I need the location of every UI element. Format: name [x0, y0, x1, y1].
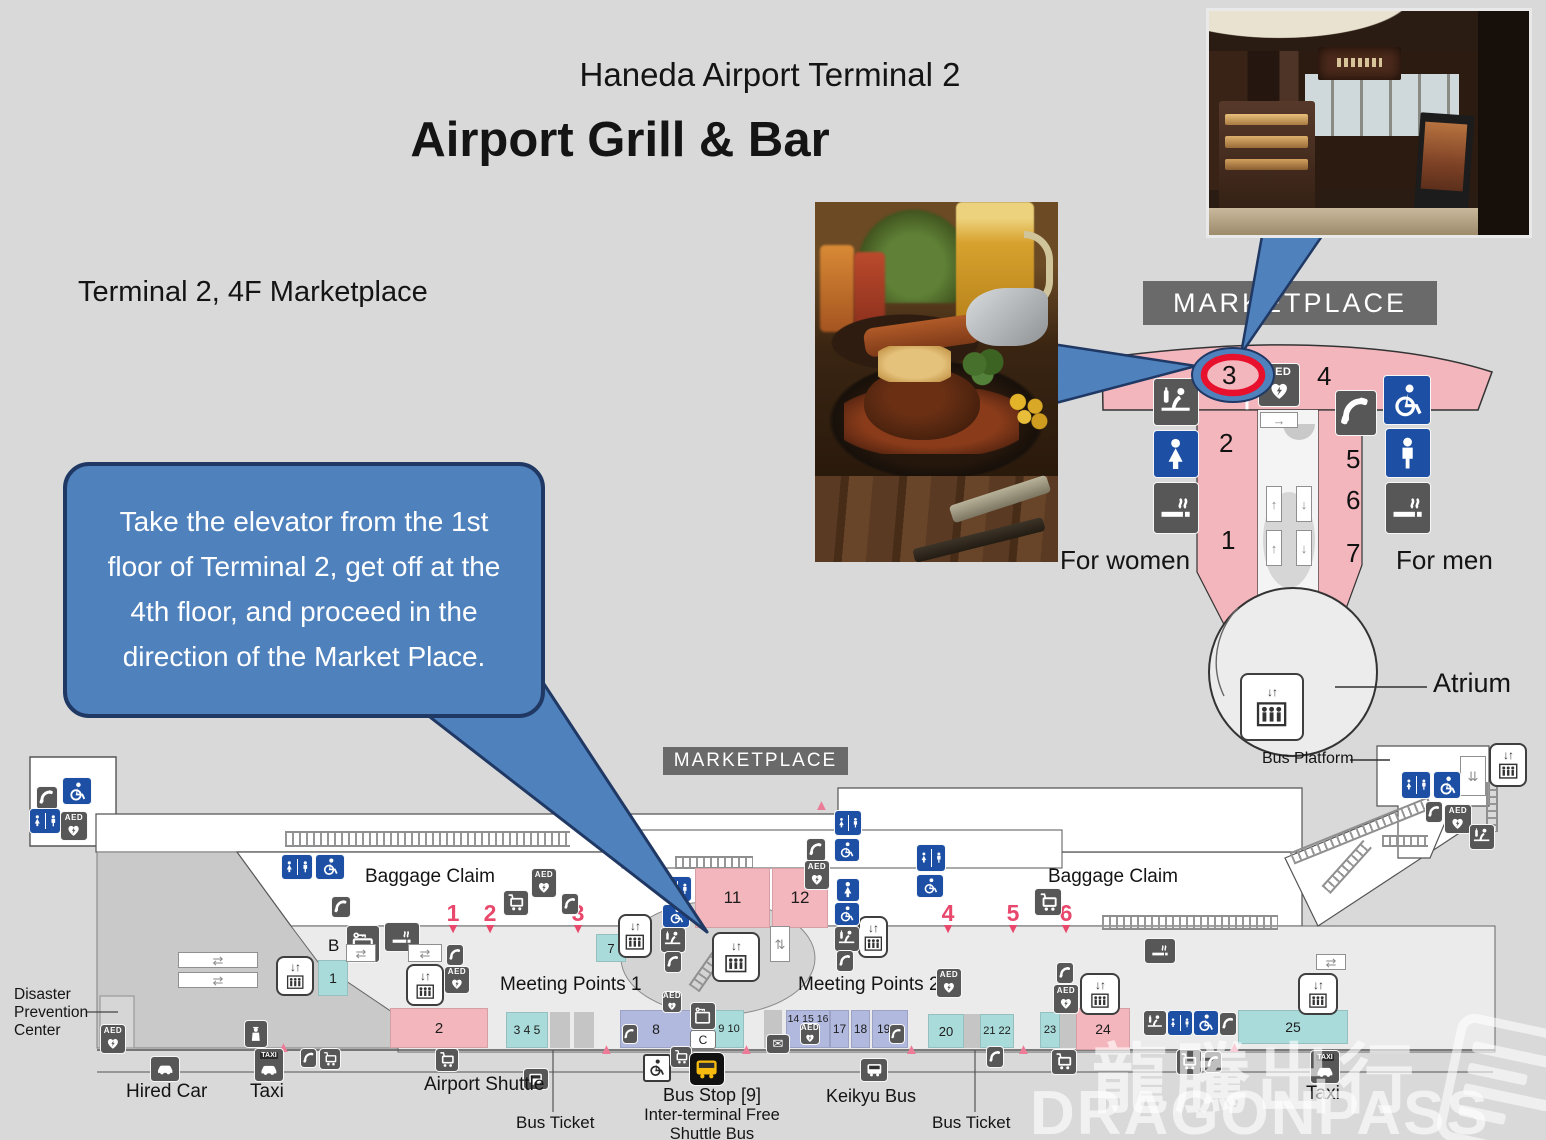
- photo-dark-column: [1478, 11, 1529, 235]
- zone-box-18: 18: [851, 1010, 870, 1048]
- photo-gravy-boat: [966, 288, 1049, 346]
- walkway-arrow-icon: →: [1260, 412, 1298, 428]
- zone-box-17: 17: [830, 1010, 849, 1048]
- photo-shelf: [1225, 159, 1308, 170]
- zone-4f-4: 4: [1317, 361, 1331, 392]
- taxi-icon: TAXI: [1310, 1050, 1340, 1084]
- zone-4f-1: 1: [1221, 525, 1235, 556]
- moving-walkway-hatch: [285, 831, 570, 847]
- aed-icon: AED: [1444, 804, 1472, 834]
- phone-icon: [331, 896, 351, 918]
- accessible-icon: [1433, 771, 1461, 799]
- restroom-icon: [29, 808, 61, 834]
- zone-box: [550, 1012, 570, 1048]
- bus-ticket-left-label: Bus Ticket: [516, 1113, 594, 1133]
- accessible-icon: [643, 1054, 671, 1082]
- elevator-icon: ↓↑: [858, 916, 888, 958]
- restaurant-photo: [1206, 8, 1532, 238]
- aed-icon: AED: [800, 1023, 820, 1045]
- bus-platform-label: Bus Platform: [1262, 750, 1354, 768]
- zone-box-23: 23: [1040, 1012, 1060, 1048]
- zone-box: [574, 1012, 594, 1048]
- location-label: Terminal 2, 4F Marketplace: [78, 276, 428, 309]
- curb-marker: [1016, 1042, 1031, 1057]
- phone-icon: [664, 951, 682, 973]
- zone-box-1: 1: [318, 960, 348, 996]
- baby-changing-icon: [660, 927, 686, 953]
- gate-2-marker: 2: [477, 903, 503, 934]
- marketplace-banner-4f: MARKETPLACE: [1143, 281, 1437, 325]
- hired-car-icon: [150, 1056, 180, 1082]
- zone-box-2: 2: [390, 1008, 488, 1048]
- aed-icon: AED: [60, 811, 88, 841]
- airport-shuttle-label: Airport Shuttle: [424, 1074, 544, 1096]
- bus-stop-label: Bus Stop [9]Inter-terminal FreeShuttle B…: [612, 1086, 812, 1140]
- zone-box-25: 25: [1238, 1010, 1348, 1044]
- luggage-cart-icon: [503, 890, 529, 916]
- escalator-down-icon: ⇊: [1460, 756, 1486, 796]
- aed-icon: AED: [804, 860, 830, 890]
- zone-box: [964, 1014, 980, 1048]
- bus-ticket-right-label: Bus Ticket: [932, 1113, 1010, 1133]
- for-women-label: For women: [1060, 545, 1190, 576]
- page-title: Airport Grill & Bar: [280, 112, 960, 168]
- phone-icon: [836, 950, 854, 972]
- restroom-icon: [1401, 771, 1431, 799]
- zone-box: [1060, 1012, 1076, 1048]
- phone-icon: [446, 944, 464, 966]
- baby-changing-icon: [1153, 378, 1199, 426]
- walkway-arrows-icon: ⇄: [1316, 954, 1346, 970]
- accessible-icon: [315, 854, 345, 880]
- aed-icon: AED: [444, 966, 470, 994]
- elevator-icon: ↓↑: [1298, 973, 1338, 1015]
- luggage-cart-icon: [1176, 1049, 1202, 1075]
- photo-sign-text: [1337, 58, 1382, 67]
- page-subtitle: Haneda Airport Terminal 2: [430, 56, 1110, 94]
- restroom-icon: [662, 876, 692, 902]
- accessible-icon: [1383, 375, 1431, 425]
- gate-4-marker: 4: [935, 903, 961, 934]
- walkway-arrows-icon: ⇄: [178, 952, 258, 968]
- phone-icon: [36, 786, 58, 810]
- hired-car-label: Hired Car: [126, 1081, 207, 1103]
- zone-box-20: 20: [928, 1014, 964, 1048]
- accessible-icon: [662, 904, 690, 928]
- baggage-claim-left-label: Baggage Claim: [365, 866, 495, 888]
- luggage-cart-icon: [1034, 888, 1062, 916]
- aed-icon: AED: [531, 868, 557, 898]
- zone-4f-2: 2: [1219, 428, 1233, 459]
- gate-1-marker: 1: [440, 903, 466, 934]
- keikyu-bus-icon: [860, 1058, 888, 1082]
- photo-shelf: [1225, 136, 1308, 147]
- smoking-area-icon: [1144, 938, 1176, 964]
- photo-menu-image: [1421, 122, 1467, 192]
- photo-mash: [878, 346, 951, 382]
- zone-4f-5: 5: [1346, 444, 1360, 475]
- women-restroom-icon: [1153, 430, 1199, 478]
- slide: Haneda Airport Terminal 2 Airport Grill …: [0, 0, 1546, 1140]
- phone-icon: [561, 893, 579, 915]
- phone-icon: [986, 1046, 1004, 1068]
- phone-icon: [300, 1048, 317, 1068]
- escalator-arrows-icon: ⇅: [770, 926, 790, 962]
- gate-5-marker: 5: [1000, 903, 1026, 934]
- restroom-icon: [916, 844, 946, 872]
- escalator-down-icon: ↓: [1296, 530, 1312, 566]
- zone-box-345: 3 4 5: [506, 1012, 548, 1048]
- mail-icon: ✉: [766, 1034, 790, 1054]
- phone-icon: [622, 1024, 638, 1044]
- accessible-icon: [916, 874, 944, 898]
- aed-icon: AED: [936, 968, 962, 998]
- zone-4f-6: 6: [1346, 485, 1360, 516]
- attendant-icon: [244, 1020, 268, 1048]
- curb-marker: [599, 1042, 614, 1057]
- escalator-down-icon: ↓: [1296, 486, 1312, 522]
- coin-locker-icon: [690, 1002, 716, 1030]
- luggage-cart-icon: [1051, 1049, 1077, 1075]
- aed-icon: AED: [1258, 363, 1300, 407]
- women-restroom-icon: [836, 878, 860, 902]
- restroom-icon: [1167, 1010, 1193, 1036]
- baggage-claim-right-label: Baggage Claim: [1048, 866, 1178, 888]
- restroom-icon: [834, 810, 862, 836]
- meeting-points-2-label: Meeting Points 2: [798, 974, 940, 996]
- zone-box-c: C: [690, 1030, 716, 1049]
- meeting-points-1-label: Meeting Points 1: [500, 974, 642, 996]
- walkway-arrows-icon: ⇄: [346, 944, 376, 962]
- phone-icon: [1219, 1012, 1237, 1036]
- aed-icon: AED: [1053, 984, 1079, 1014]
- taxi-icon: TAXI: [254, 1048, 284, 1082]
- photo-broccoli: [956, 346, 1009, 386]
- area-b-label: B: [328, 936, 339, 956]
- phone-icon: [1425, 801, 1443, 823]
- accessible-icon: [1193, 1010, 1219, 1036]
- aed-icon: AED: [100, 1024, 126, 1054]
- photo-shelf: [1225, 114, 1308, 125]
- luggage-cart-icon: [319, 1048, 341, 1070]
- smoking-area-icon: [1385, 482, 1431, 534]
- for-men-label: For men: [1396, 545, 1493, 576]
- elevator-icon: ↓↑: [1080, 973, 1120, 1015]
- elevator-icon: ↓↑: [1489, 743, 1527, 787]
- zone-box-910: 9 10: [714, 1010, 744, 1048]
- phone-icon: [889, 1024, 905, 1044]
- phone-icon: [806, 838, 826, 862]
- taxi-right-label: Taxi: [1306, 1083, 1340, 1105]
- photo-corn: [1005, 389, 1049, 432]
- zone-4f-3: 3: [1222, 360, 1236, 391]
- keikyu-bus-label: Keikyu Bus: [826, 1086, 916, 1107]
- smoking-area-icon: [1153, 482, 1199, 534]
- accessible-icon: [834, 838, 860, 862]
- restroom-icon: [281, 854, 313, 880]
- men-restroom-icon: [1385, 428, 1431, 478]
- luggage-cart-icon: [435, 1048, 459, 1072]
- taxi-left-label: Taxi: [250, 1081, 284, 1103]
- accessible-icon: [62, 777, 92, 805]
- entry-marker: [814, 798, 829, 813]
- stairs-hatch: [1382, 835, 1428, 847]
- elevator-icon: ↓↑: [712, 932, 760, 982]
- zone-4f-7: 7: [1346, 538, 1360, 569]
- instruction-text: Take the elevator from the 1st floor of …: [67, 492, 541, 687]
- baby-changing-icon: [834, 926, 860, 952]
- zone-box-11: 11: [695, 868, 770, 928]
- food-photo: [815, 202, 1058, 562]
- instruction-callout: Take the elevator from the 1st floor of …: [63, 462, 545, 718]
- free-shuttle-bus-icon: [689, 1052, 725, 1086]
- aed-icon: AED: [662, 991, 682, 1013]
- baby-changing-icon: [1469, 824, 1495, 850]
- walkway-arrows-icon: ⇄: [408, 944, 442, 962]
- phone-icon: [1335, 390, 1377, 436]
- phone-icon: [1204, 1051, 1222, 1073]
- phone-icon: [1056, 962, 1074, 984]
- walkway-arrows-icon: ⇄: [178, 972, 258, 988]
- elevator-icon: ↓↑: [1240, 673, 1304, 741]
- marketplace-banner-1f: MARKETPLACE: [663, 747, 848, 775]
- escalator-up-icon: ↑: [1266, 530, 1282, 566]
- elevator-icon: ↓↑: [618, 914, 652, 958]
- zone-box-2122: 21 22: [980, 1014, 1014, 1048]
- atrium-label: Atrium: [1433, 668, 1511, 699]
- accessible-icon: [834, 902, 860, 926]
- baby-changing-icon: [1143, 1010, 1167, 1036]
- moving-walkway-hatch: [1102, 915, 1278, 930]
- escalator-up-icon: ↑: [1266, 486, 1282, 522]
- elevator-icon: ↓↑: [276, 956, 314, 996]
- elevator-icon: ↓↑: [406, 964, 444, 1006]
